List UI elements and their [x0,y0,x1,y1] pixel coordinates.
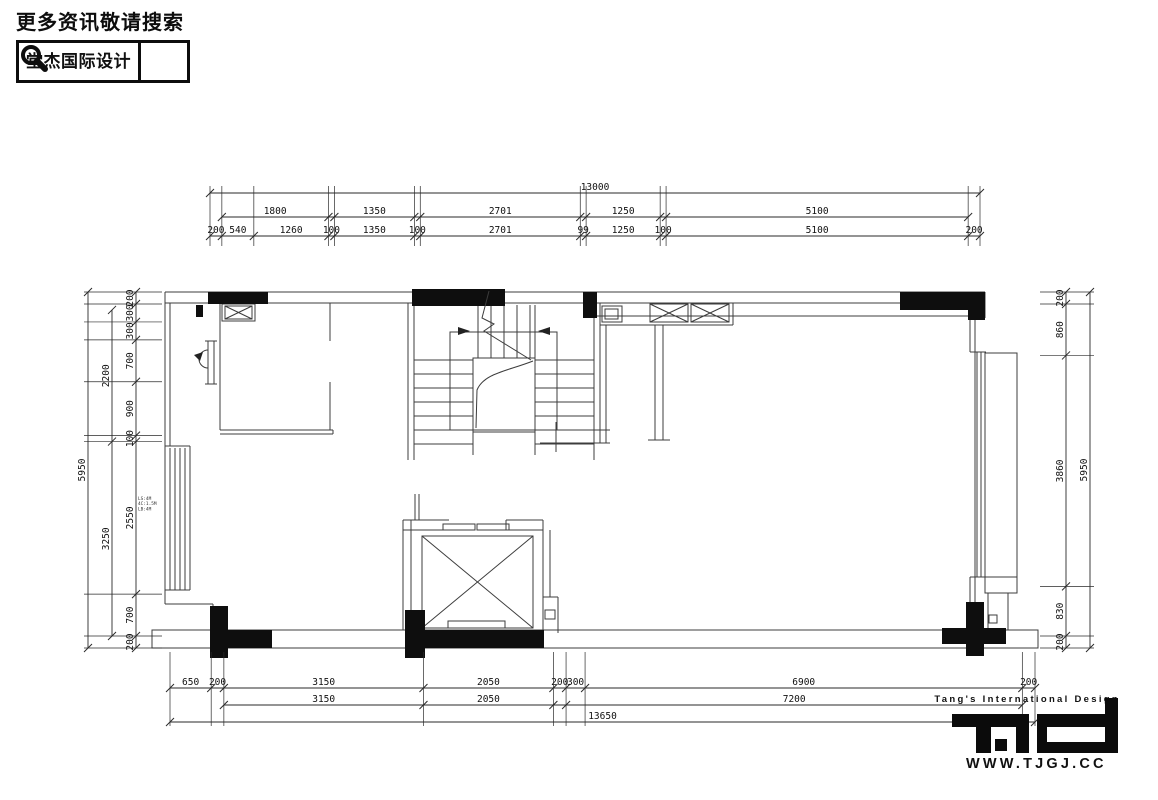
dim-label: 3150 [312,677,335,688]
dim-label: 700 [125,606,136,623]
brand-search-box: 堂杰国际设计 [16,40,190,83]
dim-label: 100 [655,225,672,236]
dim-label: 300 [567,677,584,688]
dim-label: 100 [125,430,136,447]
dim-label: 7200 [783,694,806,705]
page-title: 更多资讯敬请搜索 [16,6,184,35]
dim-label: 5100 [806,206,829,217]
dim-label: 2050 [477,677,500,688]
dim-label: 300 [125,304,136,321]
window-note: LB:4M [138,506,152,512]
logo-d-ascender [1105,698,1118,753]
dim-label: 830 [1055,602,1066,619]
dim-label: 700 [125,352,136,369]
page: { "header": { "slogan": "更多资讯敬请搜索", "bra… [0,0,1158,800]
logo-d-hole [1047,727,1105,742]
dim-label: 900 [125,400,136,417]
dim-label: 5950 [77,458,88,481]
logo-dot [995,739,1007,751]
logo-t-stem [976,727,991,753]
logo-i-bar [1016,714,1029,753]
dim-label: 13650 [588,711,617,722]
dim-label: 100 [323,225,340,236]
search-icon [141,43,187,80]
dim-label: 860 [1055,321,1066,338]
dim-label: 5950 [1079,458,1090,481]
dim-label: 1250 [612,206,635,217]
footer-tagline: Tang's International Design [934,694,1120,705]
dim-label: 1260 [280,225,303,236]
dim-label: 1800 [264,206,287,217]
logo-t-bar [952,714,1016,727]
footer-website: WWW.TJGJ.CC [966,756,1107,772]
dim-label: 3250 [101,527,112,550]
dim-label: 2701 [489,225,512,236]
window-note: LS:4M [138,496,152,502]
dim-label: 2701 [489,206,512,217]
floor-plan: LS:4M4C:1.5MLB:4M13000180013502701125051… [0,0,1158,800]
dim-label: 2550 [125,506,136,529]
window-note: 4C:1.5M [138,501,157,507]
dim-label: 1250 [612,225,635,236]
dim-label: 1350 [363,206,386,217]
dim-label: 5100 [806,225,829,236]
dim-label: 13000 [581,182,610,193]
dim-label: 650 [182,677,199,688]
dim-label: 6900 [792,677,815,688]
dim-label: 3860 [1055,459,1066,482]
dim-label: 1350 [363,225,386,236]
dim-label: 540 [229,225,246,236]
dim-label: 100 [409,225,426,236]
dim-label: 99 [577,225,589,236]
dim-label: 300 [125,322,136,339]
dim-label: 2050 [477,694,500,705]
dim-label: 2200 [101,364,112,387]
dim-label: 3150 [312,694,335,705]
